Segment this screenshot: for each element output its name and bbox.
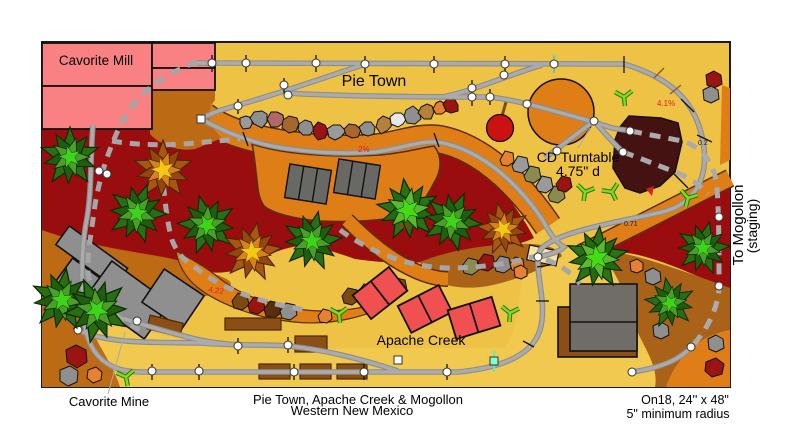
svg-text:2%: 2%: [358, 145, 370, 154]
svg-text:Western New Mexico: Western New Mexico: [291, 403, 414, 418]
svg-text:5" minimum radius: 5" minimum radius: [626, 407, 729, 421]
svg-text:4.1%: 4.1%: [657, 99, 675, 108]
svg-text:Apache Creek: Apache Creek: [377, 332, 467, 348]
svg-text:4.75" d: 4.75" d: [556, 163, 600, 179]
svg-text:On18, 24'' x 48": On18, 24'' x 48": [641, 393, 729, 407]
svg-text:4.6: 4.6: [399, 222, 411, 231]
svg-text:Cavorite Mill: Cavorite Mill: [59, 53, 133, 68]
svg-text:0.71: 0.71: [624, 221, 638, 228]
svg-text:(staging): (staging): [744, 199, 760, 253]
svg-text:Cavorite Mine: Cavorite Mine: [69, 394, 149, 409]
svg-text:0.2: 0.2: [698, 140, 708, 147]
svg-text:Pie Town: Pie Town: [342, 73, 407, 90]
